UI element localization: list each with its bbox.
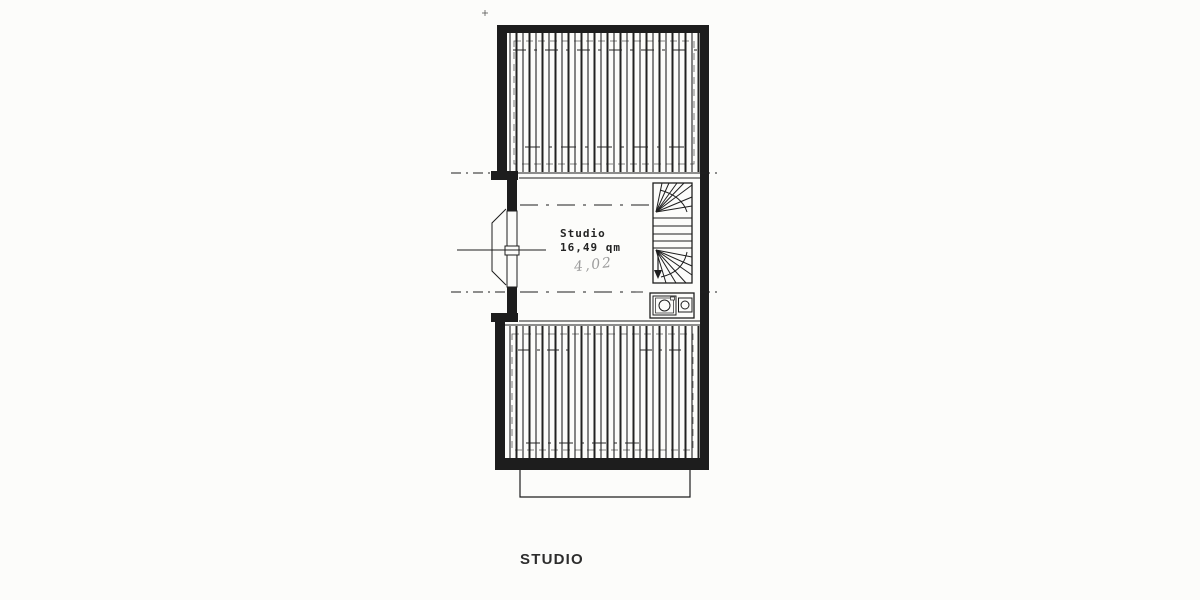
below-plan-outline	[520, 470, 690, 497]
floor-plan-drawing	[0, 0, 1200, 600]
top-roof-hatch	[507, 33, 700, 178]
room-name-label: Studio	[560, 227, 606, 240]
registration-mark	[482, 10, 488, 16]
winder-staircase	[653, 183, 692, 283]
plan-caption: STUDIO	[520, 551, 584, 568]
room-area-label: 16,49 qm	[560, 241, 621, 254]
kitchenette-fixture	[650, 293, 694, 318]
window	[505, 211, 519, 287]
bottom-roof-hatch	[505, 321, 700, 458]
window-bay-lines	[492, 209, 506, 285]
floor-plan-page: Studio 16,49 qm 4,02 STUDIO	[0, 0, 1200, 600]
